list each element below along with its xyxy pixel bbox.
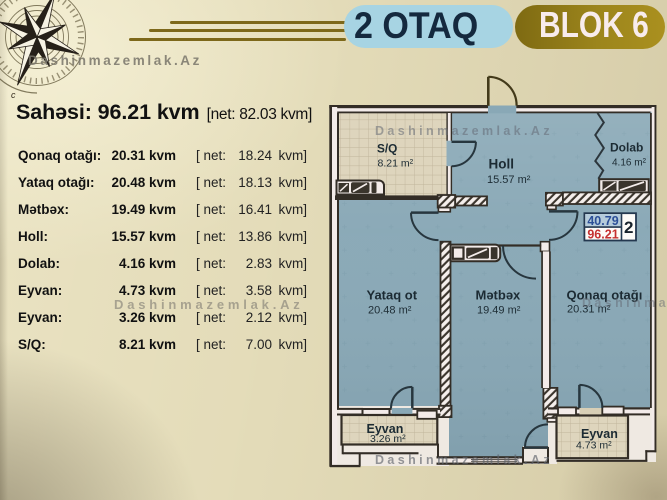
svg-text:Dolab: Dolab (610, 141, 643, 155)
svg-text:15.57 m²: 15.57 m² (487, 174, 531, 186)
svg-text:96.21: 96.21 (587, 228, 618, 242)
svg-text:S/Q: S/Q (377, 142, 397, 156)
svg-text:3.26 m²: 3.26 m² (370, 433, 406, 445)
svg-text:2: 2 (624, 218, 633, 237)
svg-text:8.21 m²: 8.21 m² (378, 158, 414, 170)
svg-text:Mətbəx: Mətbəx (476, 288, 522, 303)
svg-text:Holl: Holl (489, 156, 515, 171)
svg-text:40.79: 40.79 (587, 214, 618, 228)
svg-text:Yataq ot: Yataq ot (367, 288, 418, 303)
svg-text:19.49 m²: 19.49 m² (477, 305, 521, 317)
svg-text:20.48 m²: 20.48 m² (368, 305, 412, 317)
svg-text:4.16 m²: 4.16 m² (612, 158, 647, 169)
svg-text:4.73 m²: 4.73 m² (576, 440, 612, 452)
